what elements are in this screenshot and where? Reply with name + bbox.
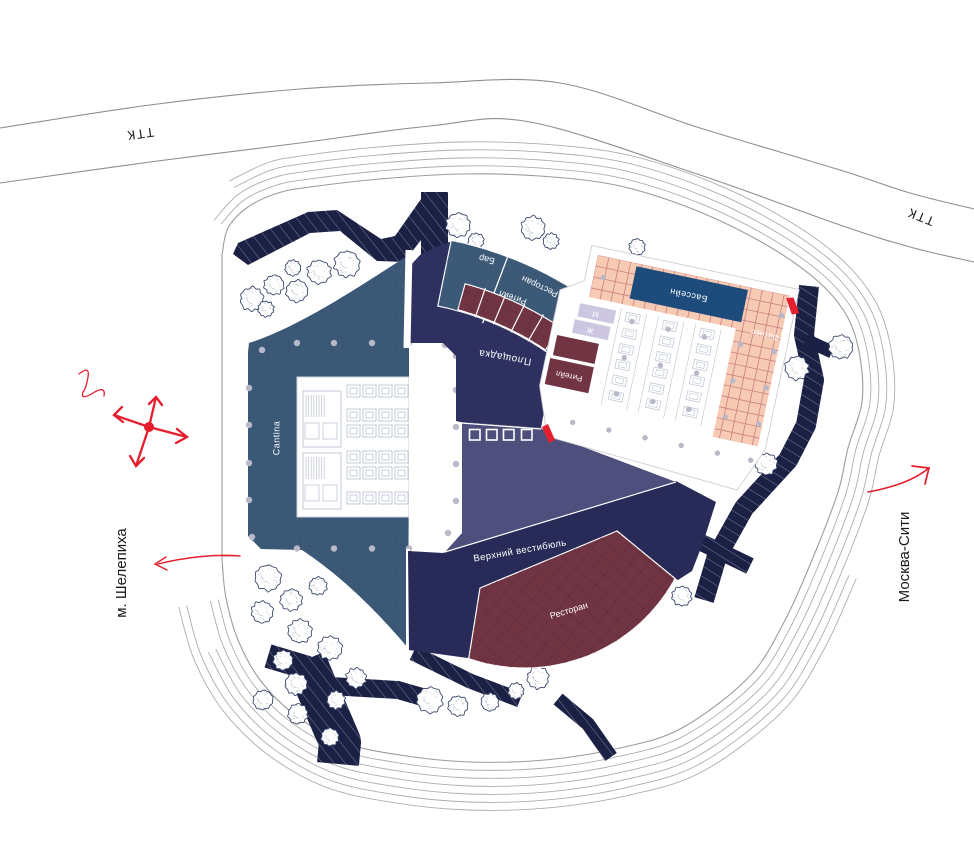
- svg-text:ТТК: ТТК: [125, 125, 155, 144]
- svg-text:ТТК: ТТК: [905, 205, 937, 229]
- svg-text:м. Шелепиха: м. Шелепиха: [113, 528, 130, 618]
- svg-text:Москва-Сити: Москва-Сити: [896, 512, 913, 603]
- svg-text:Cantina: Cantina: [271, 421, 281, 456]
